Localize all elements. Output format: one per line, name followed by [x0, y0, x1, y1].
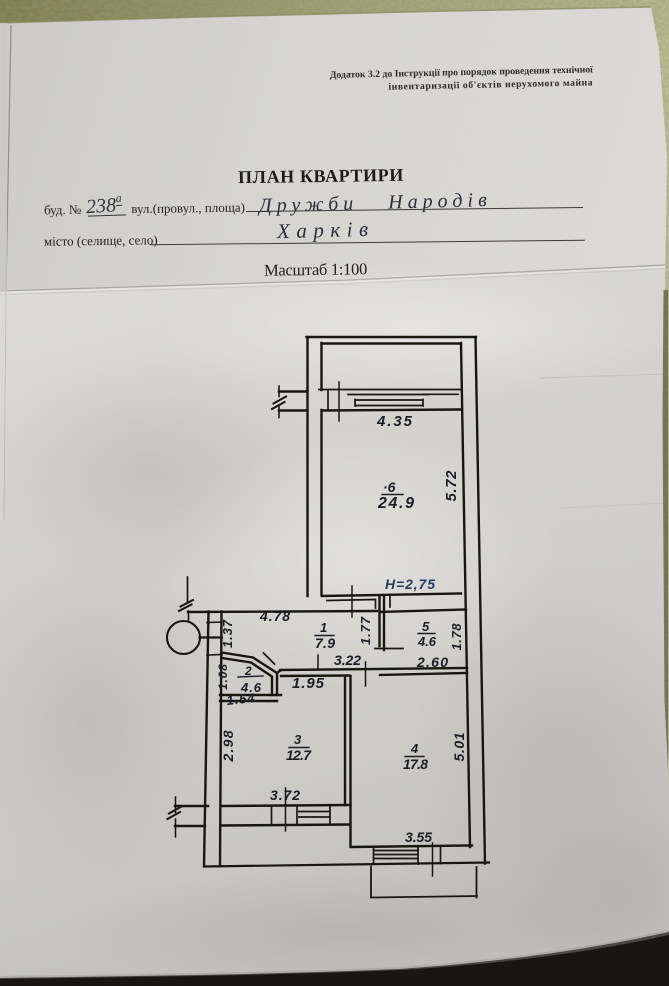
svg-text:2.98: 2.98: [220, 730, 236, 762]
svg-text:17.8: 17.8: [403, 756, 428, 772]
svg-text:1.78: 1.78: [449, 623, 464, 651]
svg-text:4: 4: [410, 741, 419, 756]
svg-text:4.35: 4.35: [376, 413, 413, 430]
svg-text:1.08: 1.08: [216, 664, 230, 690]
svg-text:3.55: 3.55: [405, 829, 432, 845]
svg-text:5: 5: [422, 619, 430, 634]
svg-text:3.22: 3.22: [334, 652, 361, 668]
svg-text:Н=2,75: Н=2,75: [385, 576, 435, 592]
svg-text:1.54: 1.54: [226, 690, 256, 708]
svg-text:24.9: 24.9: [377, 495, 414, 512]
svg-text:5.01: 5.01: [451, 732, 467, 761]
svg-text:4.78: 4.78: [259, 608, 290, 624]
svg-text:3.72: 3.72: [270, 787, 300, 803]
svg-text:12.7: 12.7: [286, 747, 312, 763]
svg-text:1.37: 1.37: [220, 619, 235, 648]
svg-text:4.6: 4.6: [417, 634, 437, 649]
svg-text:2.60: 2.60: [416, 654, 448, 670]
svg-text:3: 3: [294, 732, 302, 747]
svg-text:·6: ·6: [383, 479, 396, 495]
svg-text:1.77: 1.77: [358, 616, 373, 645]
svg-text:7.9: 7.9: [315, 635, 335, 651]
svg-text:1: 1: [320, 620, 327, 635]
svg-text:1.95: 1.95: [292, 675, 325, 692]
svg-text:5.72: 5.72: [443, 470, 460, 502]
